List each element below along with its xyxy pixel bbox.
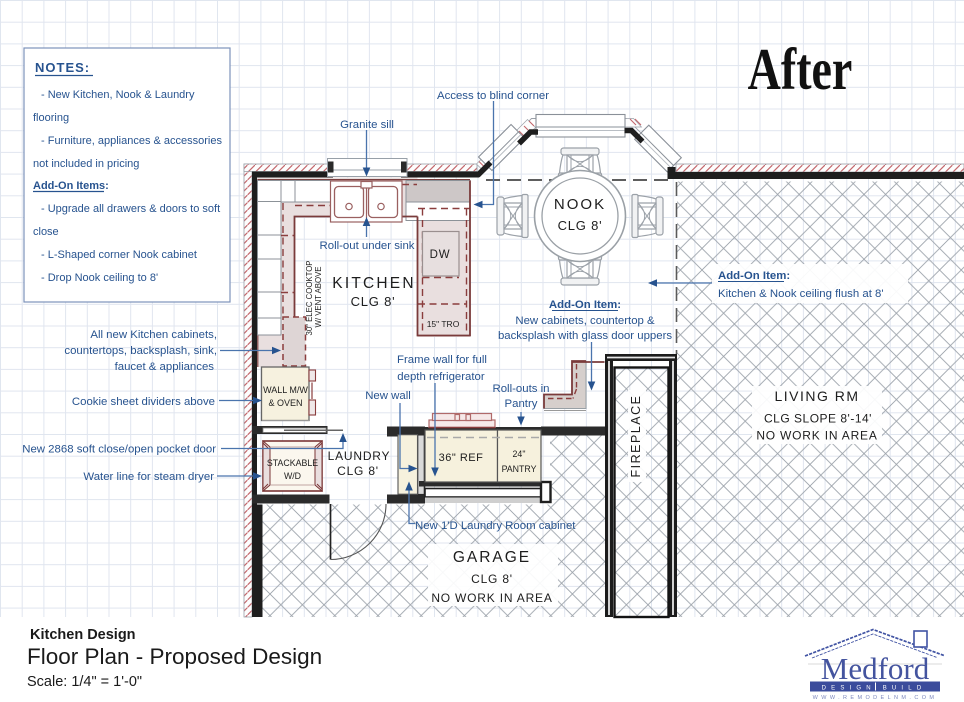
svg-text:CLG 8': CLG 8'	[337, 464, 379, 478]
svg-text:GARAGE: GARAGE	[453, 549, 531, 566]
svg-text:36" REF: 36" REF	[439, 452, 484, 464]
svg-text:W/D: W/D	[284, 471, 301, 481]
svg-text:- New Kitchen, Nook & Laundry: - New Kitchen, Nook & Laundry	[41, 89, 195, 101]
svg-text:NO WORK IN AREA: NO WORK IN AREA	[756, 429, 877, 443]
svg-text:New 1'D Laundry Room cabinet: New 1'D Laundry Room cabinet	[415, 520, 576, 532]
svg-text:30" ELEC COOKTOP: 30" ELEC COOKTOP	[305, 261, 314, 336]
svg-text:After: After	[748, 35, 853, 102]
svg-text:DESIGN BUILD: DESIGN BUILD	[822, 686, 927, 692]
svg-text:CLG 8': CLG 8'	[558, 218, 603, 233]
svg-text:WALL M/W: WALL M/W	[263, 385, 308, 395]
svg-text:faucet & appliances: faucet & appliances	[115, 361, 215, 373]
svg-text:Kitchen & Nook ceiling flush a: Kitchen & Nook ceiling flush at 8'	[718, 288, 884, 300]
svg-text:Cookie sheet dividers above: Cookie sheet dividers above	[72, 396, 215, 408]
svg-text:& OVEN: & OVEN	[268, 398, 302, 408]
svg-text:Medford: Medford	[821, 651, 930, 686]
svg-text:Scale: 1/4" = 1'-0": Scale: 1/4" = 1'-0"	[27, 674, 142, 690]
svg-text:Roll-outs in: Roll-outs in	[493, 383, 550, 395]
svg-text:Add-On Item:: Add-On Item:	[718, 270, 790, 282]
svg-text:Kitchen Design: Kitchen Design	[30, 627, 136, 643]
svg-text:- Furniture, appliances & acce: - Furniture, appliances & accessories	[41, 135, 222, 147]
svg-text:- L-Shaped corner Nook cabinet: - L-Shaped corner Nook cabinet	[41, 249, 197, 261]
svg-text:flooring: flooring	[33, 112, 69, 124]
svg-text:backsplash with glass door upp: backsplash with glass door uppers	[498, 330, 672, 342]
svg-text:PANTRY: PANTRY	[502, 464, 537, 474]
svg-text:countertops, backsplash, sink,: countertops, backsplash, sink,	[64, 345, 217, 357]
svg-text:STACKABLE: STACKABLE	[267, 458, 318, 468]
svg-text:CLG 8': CLG 8'	[351, 294, 396, 309]
svg-text:New wall: New wall	[365, 390, 411, 402]
svg-text:CLG SLOPE 8'-14': CLG SLOPE 8'-14'	[764, 412, 872, 426]
svg-text:FIREPLACE: FIREPLACE	[629, 395, 643, 478]
svg-text:DW: DW	[430, 249, 451, 261]
svg-text:not included in pricing: not included in pricing	[33, 158, 139, 170]
svg-text:Pantry: Pantry	[505, 398, 538, 410]
svg-text:All new Kitchen cabinets,: All new Kitchen cabinets,	[90, 329, 217, 341]
svg-text:W/ VENT ABOVE: W/ VENT ABOVE	[314, 267, 323, 328]
svg-text:15" TRO: 15" TRO	[427, 319, 460, 329]
svg-text:Add-On Item:: Add-On Item:	[549, 299, 621, 311]
svg-text:CLG 8': CLG 8'	[471, 572, 513, 586]
svg-text:Roll-out under sink: Roll-out under sink	[320, 240, 415, 252]
svg-text:LIVING RM: LIVING RM	[774, 388, 859, 404]
svg-text:LAUNDRY: LAUNDRY	[328, 449, 391, 463]
svg-text:Add-On Items:: Add-On Items:	[33, 180, 109, 192]
svg-text:- Drop Nook ceiling to 8': - Drop Nook ceiling to 8'	[41, 272, 158, 284]
svg-text:close: close	[33, 226, 59, 238]
svg-text:Water line for steam dryer: Water line for steam dryer	[83, 471, 214, 483]
svg-text:NOTES:: NOTES:	[35, 60, 90, 75]
svg-text:Access to blind corner: Access to blind corner	[437, 90, 549, 102]
svg-text:Granite sill: Granite sill	[340, 119, 394, 131]
svg-text:depth refrigerator: depth refrigerator	[397, 371, 485, 383]
svg-text:- Upgrade all drawers & doors: - Upgrade all drawers & doors to soft	[41, 203, 220, 215]
svg-text:Frame wall for full: Frame wall for full	[397, 354, 487, 366]
svg-text:NOOK: NOOK	[554, 196, 606, 213]
svg-text:Floor Plan - Proposed Design: Floor Plan - Proposed Design	[27, 644, 322, 669]
svg-text:NO WORK IN AREA: NO WORK IN AREA	[431, 591, 552, 605]
svg-text:WWW.REMODELNM.COM: WWW.REMODELNM.COM	[813, 695, 938, 701]
svg-text:KITCHEN: KITCHEN	[332, 275, 415, 292]
svg-text:24": 24"	[513, 449, 526, 459]
svg-text:New cabinets, countertop &: New cabinets, countertop &	[515, 315, 655, 327]
svg-text:New 2868 soft close/open pocke: New 2868 soft close/open pocket door	[22, 444, 216, 456]
